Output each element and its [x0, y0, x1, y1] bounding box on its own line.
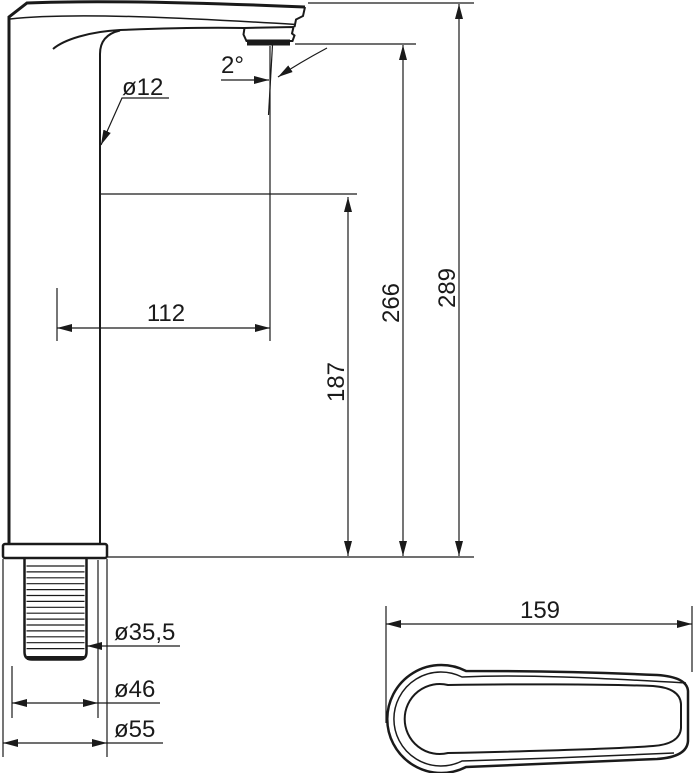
dim-outlet-height: 187 — [323, 197, 350, 556]
dim-thread-diameter: ø35,5 — [87, 619, 180, 646]
dim-label-55: ø55 — [114, 716, 155, 743]
dim-label-46: ø46 — [114, 676, 155, 703]
technical-drawing-page: 112 187 266 289 ø46 ø55 ø35,5 — [0, 0, 694, 773]
dim-label-355: ø35,5 — [114, 619, 175, 646]
dim-label-266: 266 — [378, 283, 405, 323]
handle-top-view — [387, 665, 688, 773]
dim-label-112: 112 — [147, 300, 185, 327]
thread-lines — [27, 566, 85, 649]
dim-label-289: 289 — [434, 268, 461, 308]
dim-body-diameter: ø46 — [12, 676, 160, 703]
dim-overall-height: 289 — [434, 4, 461, 556]
angle-arc-arrow — [278, 48, 327, 77]
spout-top-inner-edge — [10, 16, 296, 25]
thread-body-outline — [25, 559, 87, 660]
dim-label-angle: 2° — [221, 52, 244, 79]
dim-aerator-height: 266 — [378, 45, 405, 556]
spout-tip-outline — [295, 7, 306, 27]
dim-outlet-angle: 2° — [221, 48, 327, 80]
handle-lever-face — [405, 684, 681, 754]
aerator-outline — [244, 27, 295, 41]
dim-spout-reach: 112 — [57, 300, 270, 328]
dim-label-187: 187 — [323, 362, 350, 402]
drawing-canvas: 112 187 266 289 ø46 ø55 ø35,5 — [0, 0, 694, 773]
leader-line-12 — [101, 98, 169, 145]
spout-underside-curve — [53, 28, 244, 49]
dim-label-159: 159 — [520, 597, 560, 624]
dim-base-diameter: ø55 — [3, 716, 163, 743]
dim-label-12: ø12 — [122, 74, 163, 101]
base-flange — [3, 544, 107, 558]
dim-spout-pipe-diameter: ø12 — [101, 74, 169, 145]
dimensions: 112 187 266 289 ø46 ø55 ø35,5 — [3, 4, 692, 743]
dim-handle-length: 159 — [386, 597, 692, 624]
column-inner-edge — [100, 31, 120, 545]
